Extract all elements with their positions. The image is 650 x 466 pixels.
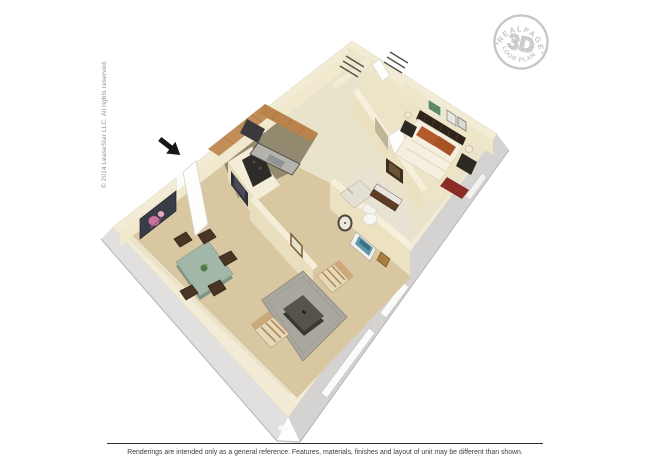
burner-2 — [258, 166, 261, 169]
door-stoop — [278, 425, 290, 431]
burner-1 — [252, 160, 255, 163]
realpage-3d-watermark: REALPAGE FLOOR PLANS 3D 3D ✦ ✦ — [490, 11, 553, 74]
centerpiece-top — [205, 264, 208, 267]
entry-arrow-icon — [155, 133, 185, 161]
toilet-bowl — [363, 214, 377, 225]
watermark-star-left: ✦ — [494, 41, 499, 48]
disclaimer-text: Renderings are intended only as a genera… — [127, 449, 523, 456]
floor-plan-page: REALPAGE FLOOR PLANS 3D 3D ✦ ✦ © 2014 Le… — [0, 0, 650, 466]
footer: Renderings are intended only as a genera… — [107, 444, 543, 457]
copyright-text: © 2014 LeaseStar LLC. All rights reserve… — [100, 60, 108, 188]
lamp-left — [405, 112, 411, 118]
floor-plan-canvas: REALPAGE FLOOR PLANS 3D 3D ✦ ✦ © 2014 Le… — [0, 0, 650, 466]
lamp-right — [465, 145, 472, 152]
clock-center — [344, 222, 346, 224]
